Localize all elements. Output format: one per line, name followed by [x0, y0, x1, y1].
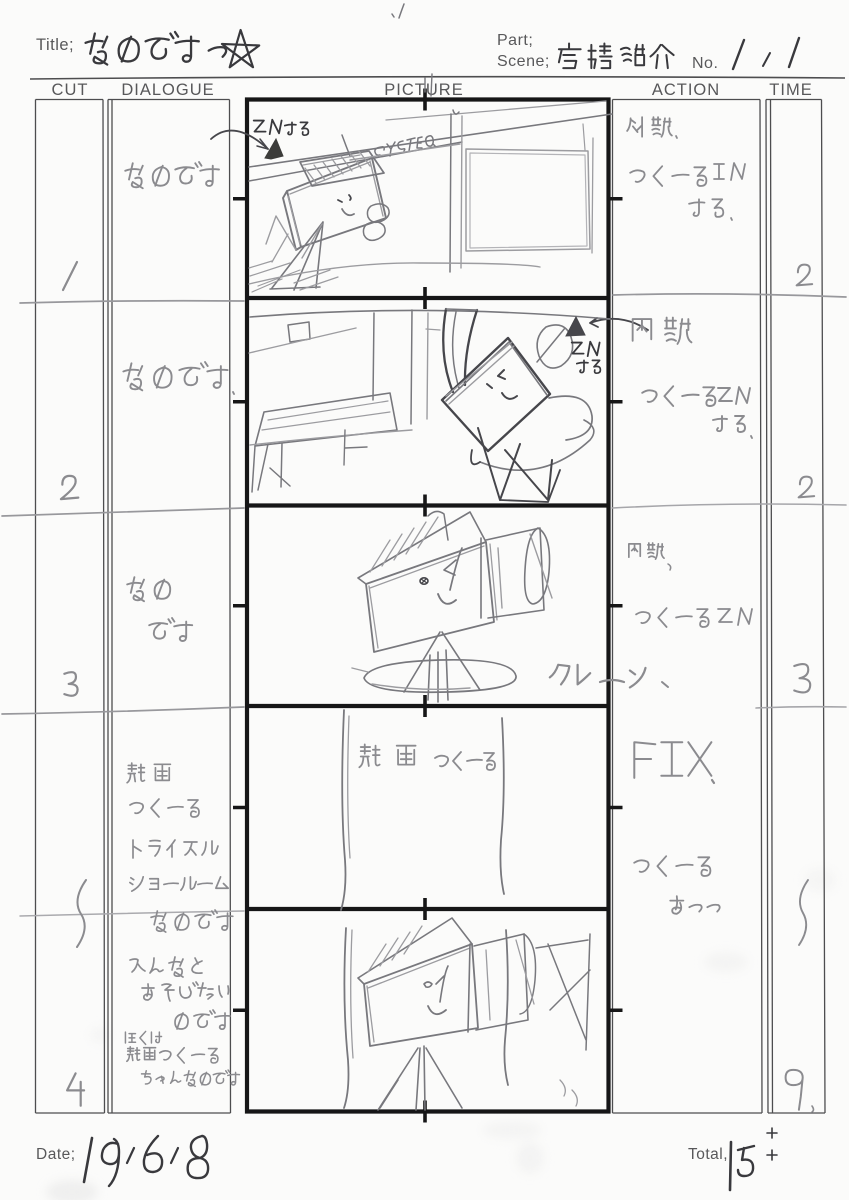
svg-text:Scene;: Scene;: [497, 53, 550, 70]
svg-text:Part;: Part;: [497, 32, 533, 49]
svg-text:No.: No.: [692, 55, 718, 72]
svg-text:TIME: TIME: [769, 81, 812, 99]
svg-text:ACTION: ACTION: [652, 81, 720, 99]
svg-text:DIALOGUE: DIALOGUE: [121, 81, 214, 99]
svg-text:Total,: Total,: [688, 1146, 728, 1163]
svg-text:Date;: Date;: [36, 1146, 76, 1163]
svg-text:CUT: CUT: [52, 81, 89, 99]
svg-text:Title;: Title;: [36, 36, 74, 54]
